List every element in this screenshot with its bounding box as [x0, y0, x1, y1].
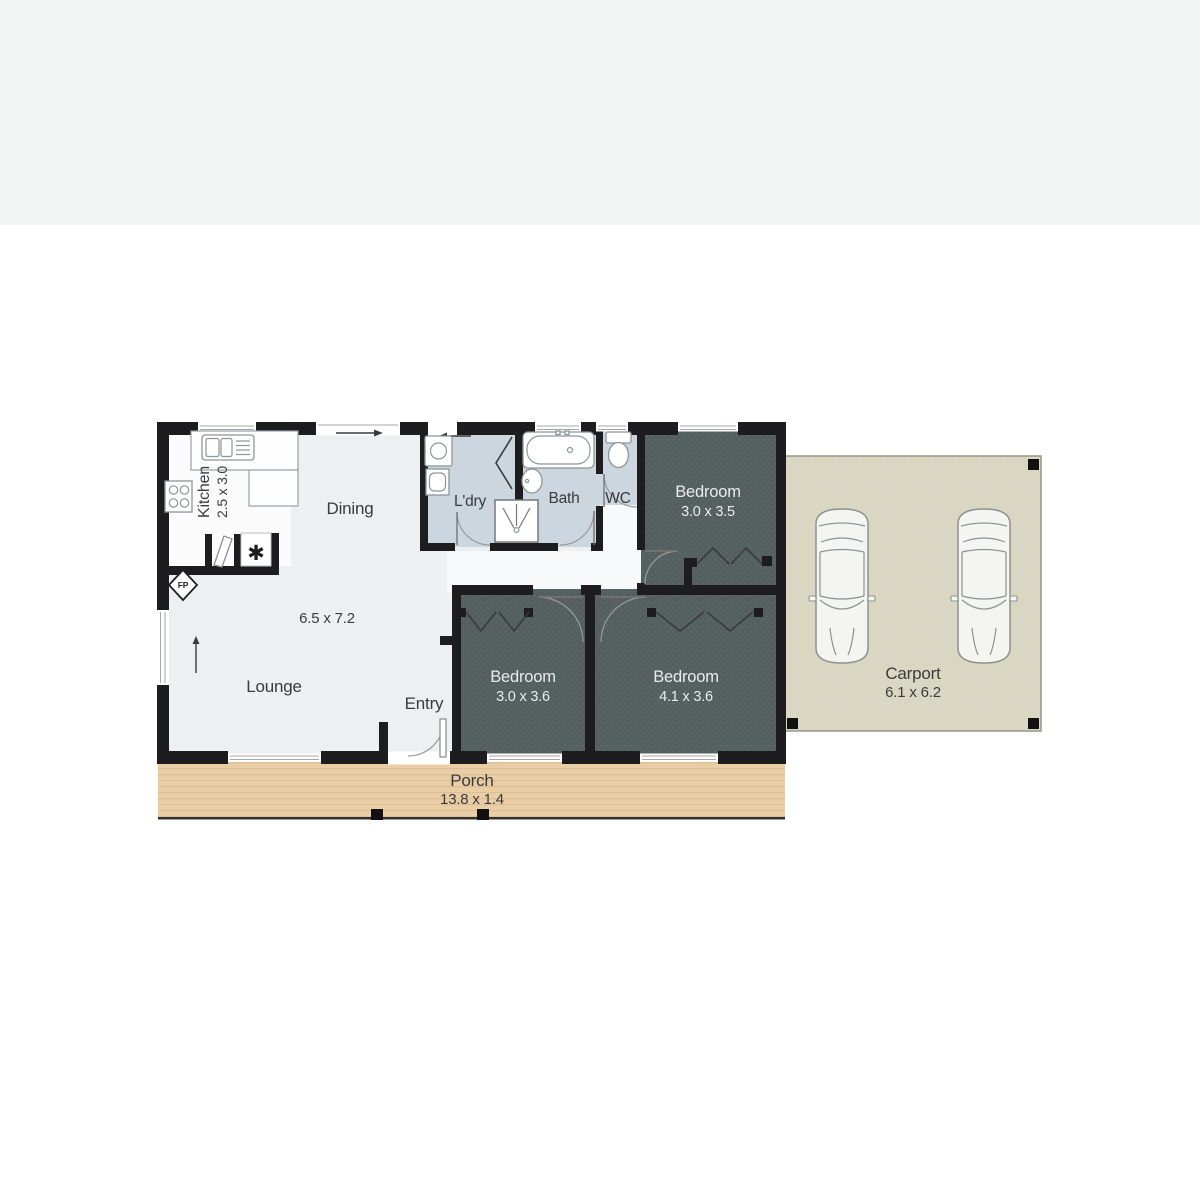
window-bedroom1 [678, 424, 738, 432]
kitchen-sink-icon [202, 435, 254, 460]
fireplace-label: FP [178, 580, 189, 590]
lounge-label: Lounge [246, 677, 302, 696]
kitchen-dims: 2.5 x 3.0 [214, 466, 230, 518]
laundry-tub-icon [426, 469, 449, 495]
sliding-door-dining [316, 422, 400, 437]
porch-label: Porch [450, 771, 493, 790]
window-lounge [228, 754, 321, 762]
top-gray-band [0, 0, 1200, 225]
toilet-icon [606, 432, 631, 468]
bath-label: Bath [548, 490, 579, 507]
porch-post [477, 809, 489, 820]
bath-basin-icon [522, 469, 542, 493]
carport-dims: 6.1 x 6.2 [885, 684, 941, 701]
bedroom2-label: Bedroom [490, 668, 556, 686]
carport-post [1028, 718, 1039, 729]
shower-icon [495, 500, 538, 542]
bedroom2-dims: 3.0 x 3.6 [496, 689, 550, 705]
window-wc [596, 424, 628, 432]
car-2 [951, 509, 1017, 663]
laundry-label: L'dry [454, 493, 487, 510]
lounge-dims: 6.5 x 7.2 [299, 610, 355, 627]
washing-machine-icon [425, 436, 452, 466]
kitchen-label: Kitchen [196, 466, 213, 518]
bathtub-icon [523, 431, 594, 468]
dining-label: Dining [327, 499, 374, 518]
porch-post [371, 809, 383, 820]
window-bedroom2 [487, 754, 562, 762]
floorplan-page: FP ✱ Kitchen 2.5 x 3.0 Dining 6.5 x 7.2 … [0, 0, 1200, 1200]
kitchen-bench-return [249, 470, 298, 506]
window-bath [535, 424, 581, 432]
car-1 [809, 509, 875, 663]
bedroom1-label: Bedroom [675, 483, 741, 501]
porch-dims: 13.8 x 1.4 [440, 791, 504, 808]
carport-post [1028, 459, 1039, 470]
floorplan-drawing: FP ✱ Kitchen 2.5 x 3.0 Dining 6.5 x 7.2 … [0, 0, 1200, 1200]
pantry-symbol: ✱ [247, 542, 264, 565]
entry-label: Entry [405, 694, 444, 713]
window-bedroom3 [640, 754, 718, 762]
window-kitchen [198, 424, 256, 432]
wc-label: WC [605, 490, 630, 507]
stove-icon [165, 481, 192, 512]
bedroom3-label: Bedroom [653, 668, 719, 686]
bedroom3-dims: 4.1 x 3.6 [659, 689, 713, 705]
carport-post [787, 718, 798, 729]
bedroom1-dims: 3.0 x 3.5 [681, 504, 735, 520]
carport-label: Carport [885, 664, 941, 683]
